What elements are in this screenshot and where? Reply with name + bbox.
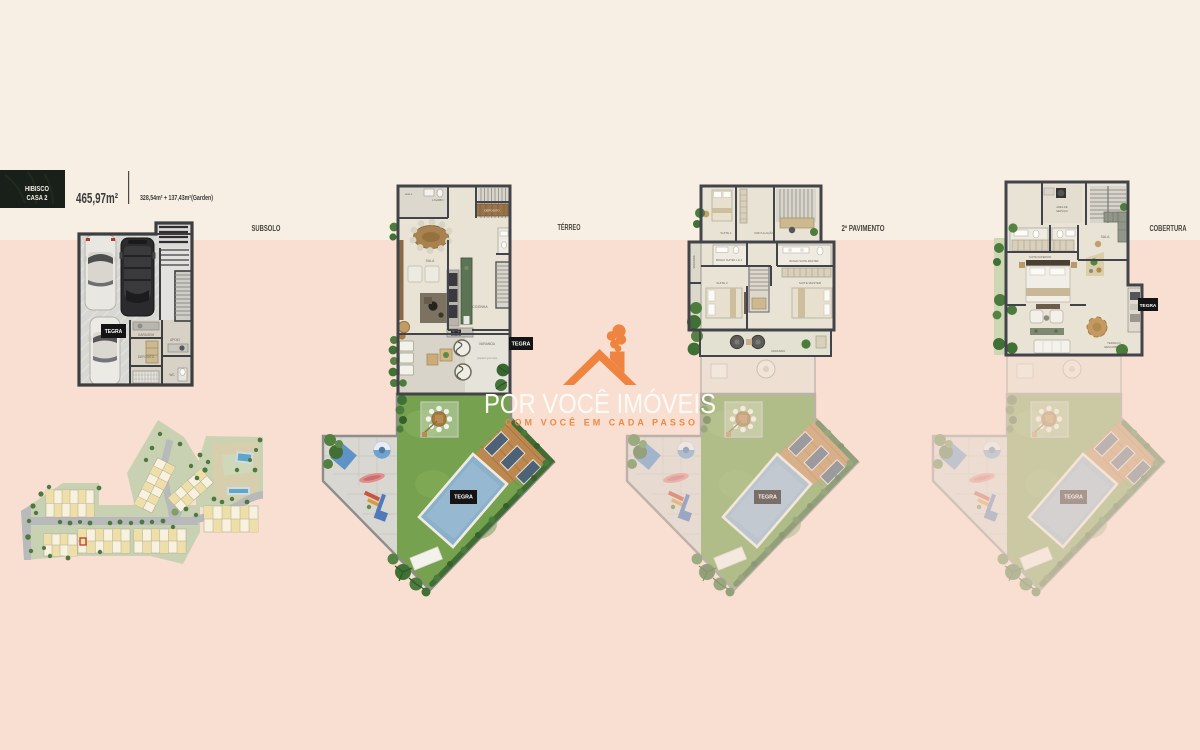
- svg-text:TEGRA: TEGRA: [512, 342, 531, 348]
- svg-text:AREA DE: AREA DE: [1056, 205, 1068, 209]
- svg-text:POR VOCÊ IMÓVEIS: POR VOCÊ IMÓVEIS: [484, 388, 716, 419]
- svg-text:VARANDA: VARANDA: [479, 342, 496, 346]
- svg-text:2º PAVIMENTO: 2º PAVIMENTO: [842, 224, 885, 233]
- svg-text:SUBSOLO: SUBSOLO: [252, 224, 281, 233]
- svg-text:SUITE 1: SUITE 1: [720, 231, 732, 235]
- svg-text:COBERTURA: COBERTURA: [1150, 224, 1187, 233]
- svg-text:BANHO SUITE MASTER: BANHO SUITE MASTER: [789, 259, 818, 263]
- svg-text:CASA 2: CASA 2: [27, 195, 48, 202]
- svg-text:328,54m² + 137,43m²(Garden): 328,54m² + 137,43m²(Garden): [140, 195, 213, 202]
- svg-text:SUITE 2: SUITE 2: [716, 281, 728, 285]
- svg-text:(espaco gourmet): (espaco gourmet): [477, 356, 497, 360]
- svg-text:HALL: HALL: [405, 192, 413, 196]
- svg-text:SUITE SUPERIOR: SUITE SUPERIOR: [1029, 255, 1051, 259]
- svg-text:APOIO: APOIO: [170, 338, 181, 342]
- svg-text:LAVABO: LAVABO: [432, 198, 444, 202]
- svg-text:VARANDA: VARANDA: [692, 255, 696, 268]
- svg-text:TÉRREO: TÉRREO: [558, 223, 581, 232]
- svg-text:SALA: SALA: [1101, 235, 1110, 239]
- svg-text:DEPÓSITO: DEPÓSITO: [138, 354, 155, 359]
- svg-text:WC: WC: [169, 373, 175, 377]
- svg-text:TEGRA: TEGRA: [105, 329, 123, 335]
- svg-text:DEPOSITO: DEPOSITO: [484, 209, 500, 213]
- svg-text:465,97m²: 465,97m²: [76, 191, 118, 207]
- svg-text:TEGRA: TEGRA: [1140, 303, 1157, 309]
- svg-text:GARAGEM: GARAGEM: [138, 333, 155, 337]
- svg-text:BANHO SUITES 1 E 2: BANHO SUITES 1 E 2: [716, 258, 743, 262]
- svg-text:CIRCULAÇÃO: CIRCULAÇÃO: [754, 230, 774, 235]
- svg-text:VARANDA: VARANDA: [771, 349, 785, 353]
- svg-text:SUITE MASTER: SUITE MASTER: [799, 281, 822, 285]
- svg-text:COZINHA: COZINHA: [472, 305, 488, 309]
- svg-text:SERVIÇO: SERVIÇO: [1056, 209, 1068, 213]
- svg-text:SALA: SALA: [426, 259, 435, 263]
- svg-text:HIBISCO: HIBISCO: [25, 186, 49, 193]
